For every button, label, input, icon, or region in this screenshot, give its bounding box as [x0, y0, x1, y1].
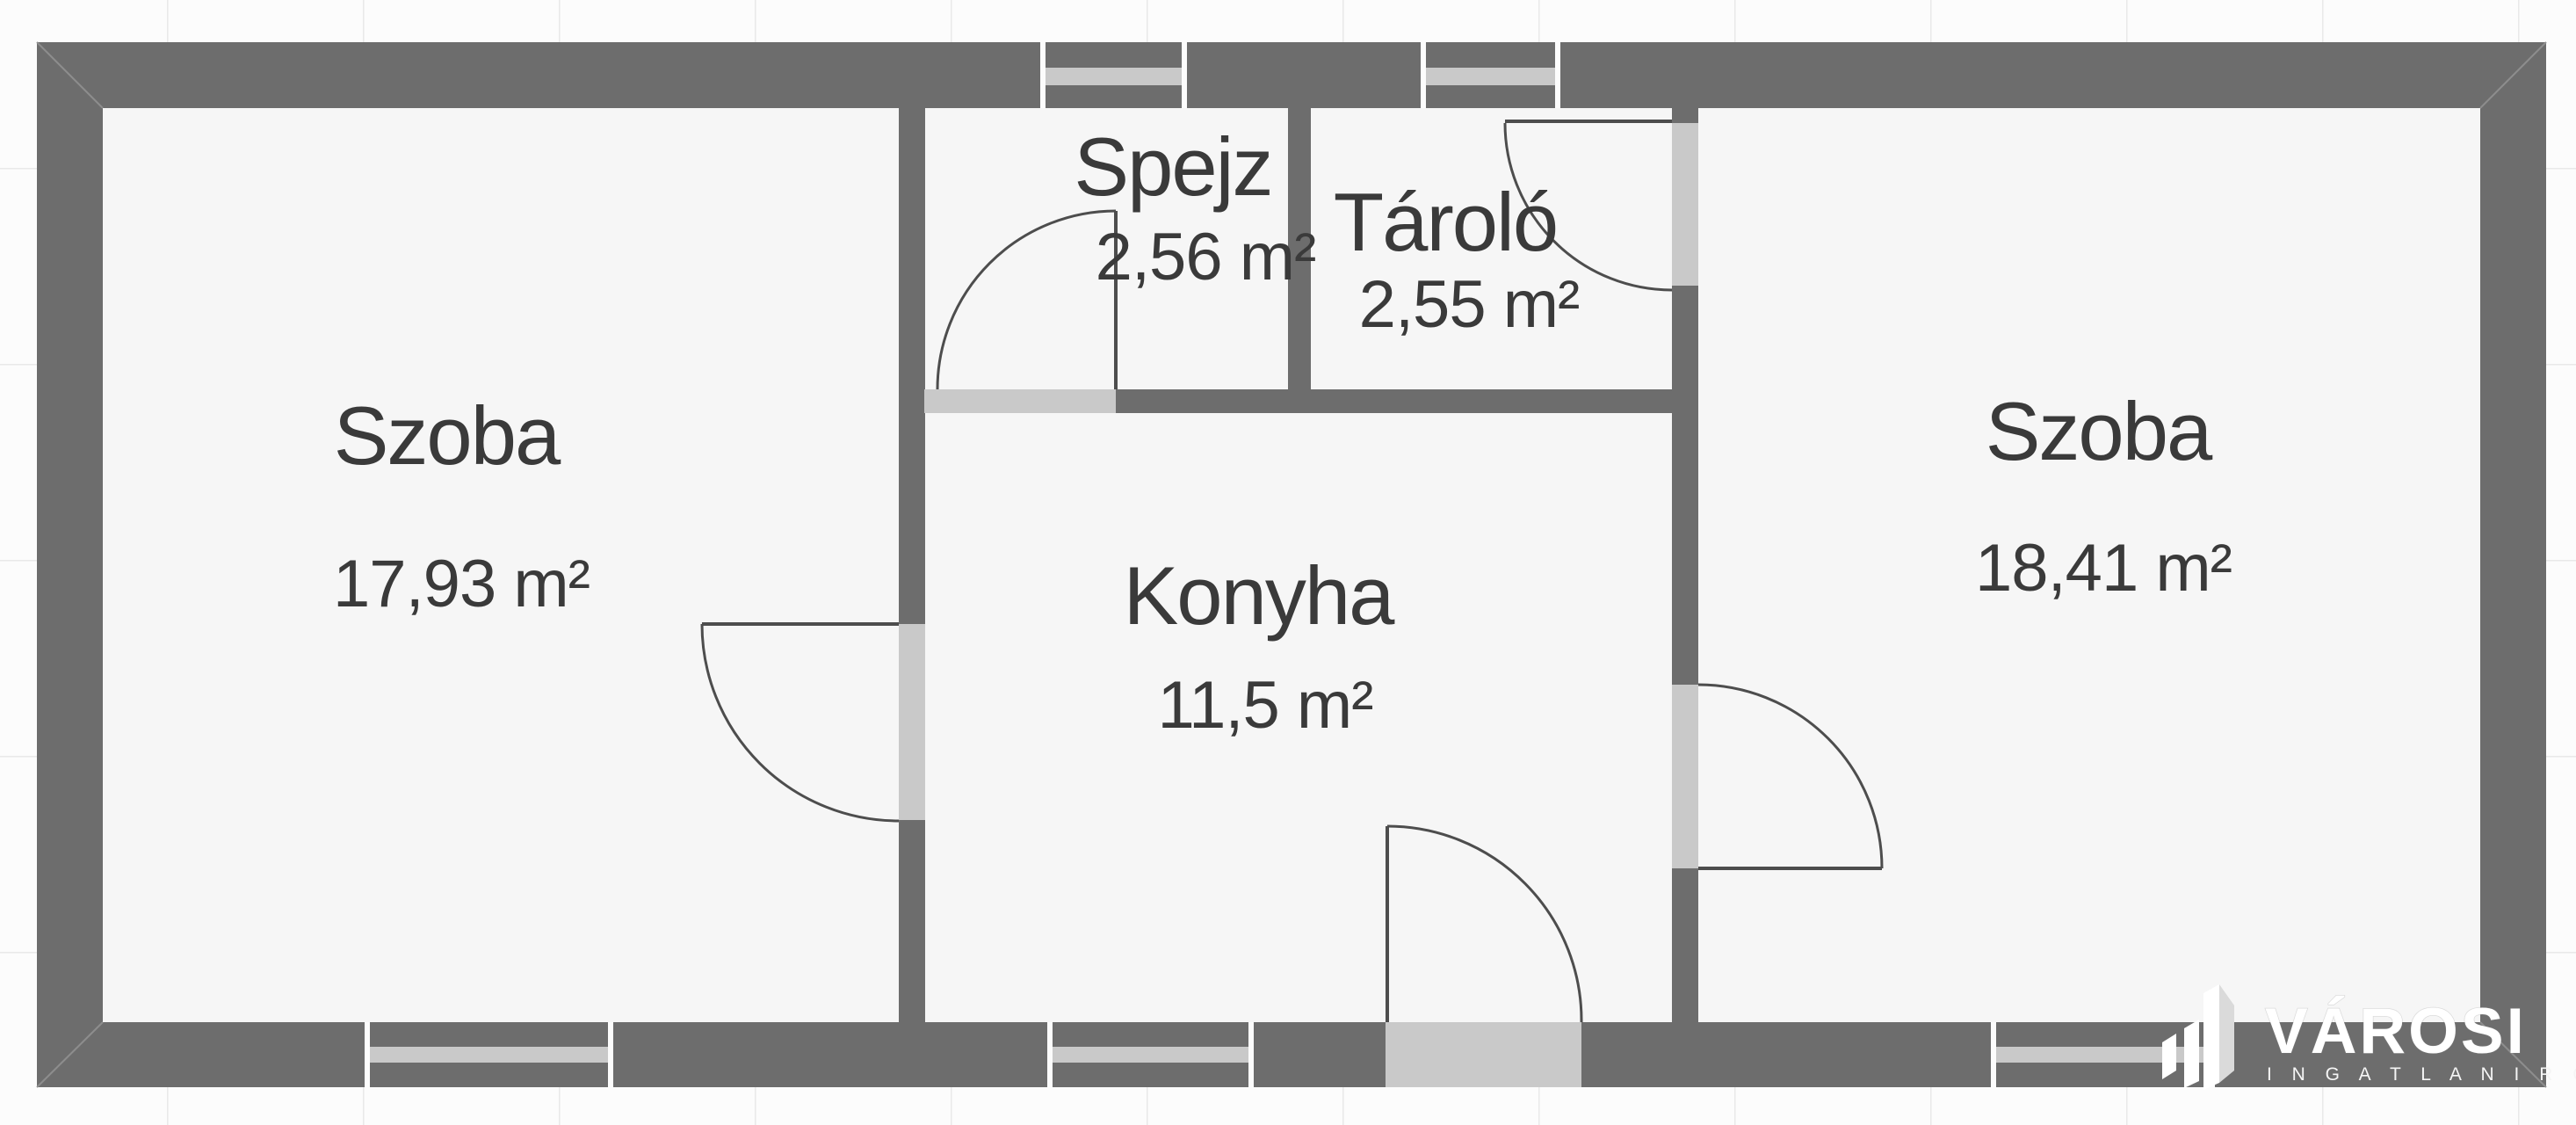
- floor-plan-svg: Szoba 17,93 m² Spejz 2,56 m² Tároló 2,55…: [0, 0, 2576, 1125]
- room-area-label: 17,93 m²: [333, 547, 590, 621]
- brand-logo: VÁROSI I N G A T L A N I R O D A: [2162, 984, 2576, 1090]
- door-threshold: [1672, 685, 1698, 868]
- room-area-label: 18,41 m²: [1975, 531, 2232, 606]
- door-threshold: [899, 624, 925, 820]
- interior-wall: [899, 108, 925, 624]
- room-area-label: 11,5 m²: [1157, 668, 1372, 743]
- room-name-label: Szoba: [334, 389, 561, 482]
- door-threshold: [924, 389, 1116, 413]
- room-name-label: Tároló: [1334, 176, 1557, 268]
- interior-wall: [1672, 868, 1698, 1023]
- brand-subtitle: I N G A T L A N I R O D A: [2267, 1064, 2576, 1085]
- door-threshold: [1672, 123, 1698, 286]
- room-area-label: 2,55 m²: [1359, 267, 1580, 342]
- interior-wall: [1672, 108, 1698, 123]
- room-name-label: Konyha: [1124, 549, 1396, 642]
- room-name-label: Spejz: [1074, 120, 1271, 213]
- brand-name: VÁROSI: [2265, 996, 2527, 1067]
- floor-plan-page: Szoba 17,93 m² Spejz 2,56 m² Tároló 2,55…: [0, 0, 2576, 1125]
- interior-wall: [1672, 286, 1698, 685]
- interior-wall: [899, 820, 925, 1023]
- door-threshold: [1386, 1022, 1581, 1087]
- room-area-label: 2,56 m²: [1096, 220, 1316, 294]
- room-name-label: Szoba: [1986, 385, 2213, 477]
